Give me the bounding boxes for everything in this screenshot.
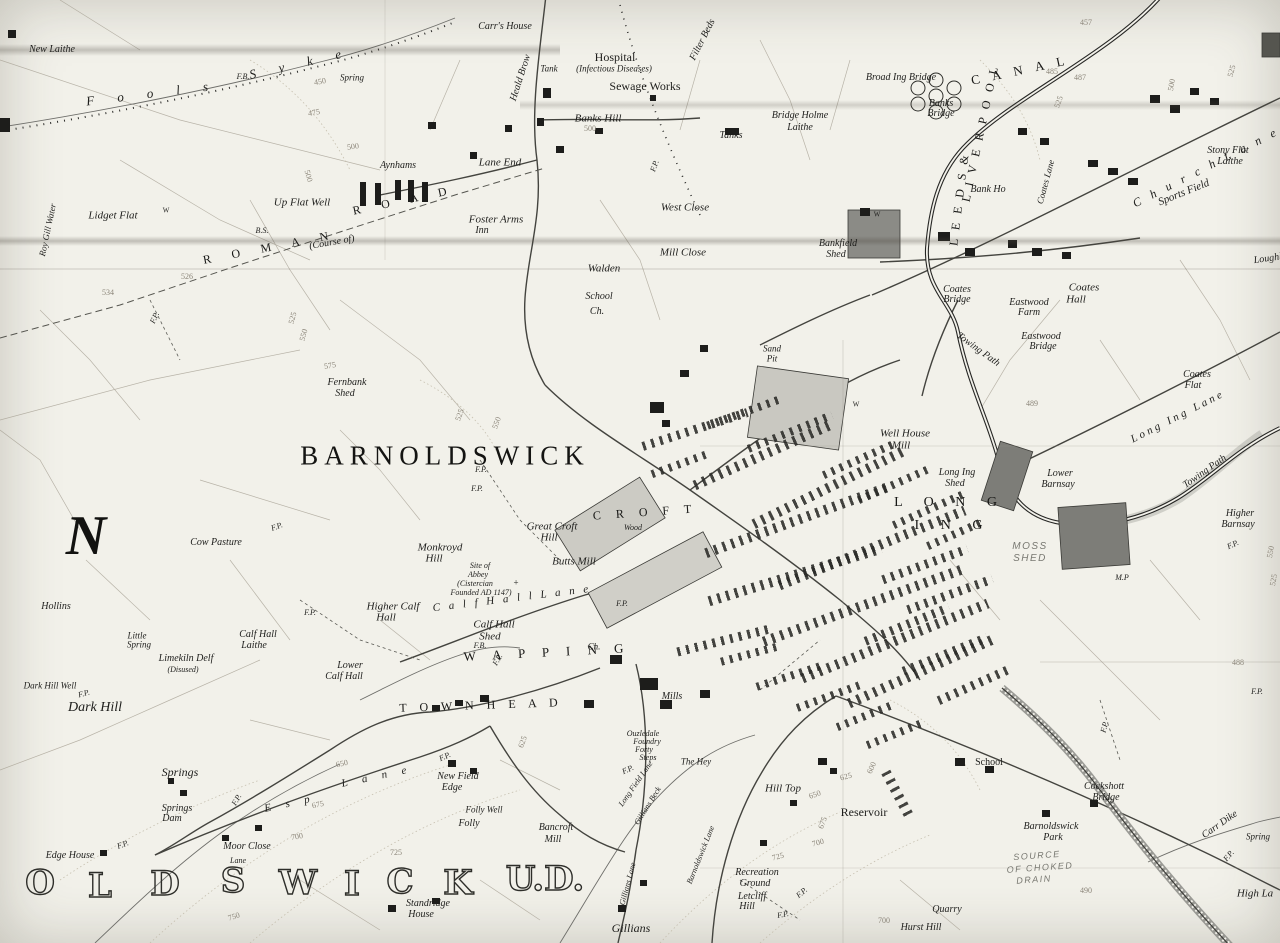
- map-label: Hill: [540, 533, 557, 544]
- map-label: Lidget Flat: [88, 211, 137, 222]
- map-label: Edge: [442, 783, 463, 793]
- map-label: Limekiln Delf: [159, 654, 214, 664]
- map-label: Hollins: [41, 602, 70, 612]
- map-label: Bridge: [943, 295, 970, 305]
- map-label: Recreation: [735, 868, 779, 878]
- map-label: Shed: [335, 389, 354, 399]
- map-label: Hill: [739, 902, 755, 912]
- map-label: Farm: [1018, 308, 1040, 318]
- map-label: (Infectious Diseases): [576, 65, 652, 74]
- map-label: Bridge: [927, 109, 954, 119]
- map-label: F.P.: [1251, 688, 1263, 696]
- map-label: Park: [1043, 833, 1062, 843]
- map-label: 526: [181, 273, 193, 281]
- map-label: Lower: [1047, 469, 1073, 479]
- map-label: 457: [1080, 19, 1092, 27]
- map-label: Up Flat Well: [274, 198, 330, 209]
- map-label: Carr's House: [478, 22, 532, 32]
- map-label: 725: [390, 849, 402, 857]
- map-label: Lane End: [479, 158, 521, 169]
- map-label: Coates: [1183, 370, 1211, 380]
- map-label: Tank: [540, 65, 557, 74]
- map-label: Bancroft: [539, 823, 574, 833]
- map-label: F.P.: [304, 609, 316, 617]
- map-label: Standridge: [406, 899, 450, 909]
- map-label: 500: [347, 142, 360, 152]
- map-label: Calf Hall: [239, 630, 277, 640]
- map-label: Walden: [588, 264, 621, 275]
- map-label: K: [443, 866, 473, 900]
- map-label: N: [66, 508, 106, 564]
- map-label: Mill: [545, 835, 562, 845]
- map-label: 488: [1232, 659, 1244, 667]
- map-label: Stony Flat: [1207, 146, 1248, 156]
- map-label: Folly: [458, 819, 479, 829]
- map-label: Laithe: [1217, 157, 1243, 167]
- map-label: Barnsay: [1041, 480, 1074, 490]
- map-label: I N G: [915, 519, 992, 533]
- map-label: Broad Ing Bridge: [866, 73, 936, 83]
- map-label: Bridge: [1029, 342, 1056, 352]
- map-label: F.P.: [471, 485, 483, 493]
- map-label: C: [386, 865, 413, 899]
- map-label: Hall: [376, 613, 396, 624]
- map-label: W: [853, 402, 860, 409]
- map-label: Ch.: [588, 643, 601, 652]
- map-label: Edge House: [46, 851, 95, 861]
- map-label: Tanks: [720, 131, 743, 141]
- map-label: Bankfield: [819, 239, 857, 249]
- map-label: Hill: [425, 554, 442, 565]
- map-label: Butts Mill: [552, 557, 596, 568]
- map-label: M.P: [1115, 574, 1129, 582]
- map-label: Springs: [162, 766, 199, 778]
- map-label: School: [585, 292, 612, 302]
- map-label: Dark Hill: [68, 701, 122, 715]
- map-label: Shed: [826, 250, 845, 260]
- map-label: (Disused): [167, 666, 198, 674]
- map-label: S: [221, 864, 246, 898]
- map-label: 489: [1026, 400, 1038, 408]
- map-label: Well House: [880, 429, 930, 440]
- map-label: West Close: [661, 203, 709, 214]
- map-label: Wood: [624, 524, 642, 532]
- map-label: 700: [878, 917, 890, 925]
- map-label: D: [150, 867, 179, 901]
- map-label: Foster Arms: [469, 215, 524, 226]
- map-label: B.S.: [256, 227, 269, 235]
- map-label: 500: [584, 125, 596, 133]
- map-label: Gillians: [612, 922, 651, 934]
- map-label: F.P.: [475, 466, 487, 474]
- map-label: I: [344, 867, 360, 901]
- map-label: Pit: [767, 355, 778, 364]
- map-label: Laithe: [241, 641, 267, 651]
- map-label: Banks Hill: [575, 114, 622, 125]
- mill-buildings: [555, 33, 1280, 628]
- boundary-dotted: [0, 22, 455, 132]
- map-label: Cow Pasture: [190, 538, 242, 548]
- map-label: Spring: [127, 641, 151, 650]
- map-label: F.P.: [616, 600, 628, 608]
- map-label: W: [163, 208, 170, 215]
- map-label: Flat: [1185, 381, 1202, 391]
- map-label: Ground: [740, 879, 771, 889]
- map-label: House: [408, 910, 434, 920]
- map-label: New Laithe: [29, 45, 75, 55]
- map-label: Bridge: [1092, 793, 1119, 803]
- map-label: Bank Ho: [970, 185, 1005, 195]
- map-label: 500: [303, 169, 314, 183]
- map-label: O: [25, 866, 55, 900]
- map-label: Abbey: [468, 571, 488, 579]
- map-label: Site of: [470, 562, 490, 570]
- map-label: The Hey: [681, 758, 711, 767]
- map-label: Hurst Hill: [901, 923, 942, 933]
- map-label: Shed: [945, 479, 964, 489]
- map-label: Laithe: [787, 123, 813, 133]
- map-label: Calf Hall: [325, 672, 363, 682]
- map-label: Lower: [337, 661, 363, 671]
- map-label: W: [874, 212, 881, 219]
- map-label: Coates: [1069, 283, 1100, 294]
- map-label: New Field: [437, 772, 478, 782]
- map-label: BARNOLDSWICK: [300, 443, 590, 470]
- map-label: Calf Hall: [473, 620, 514, 631]
- map-label: Hall: [1066, 295, 1086, 306]
- map-label: +: [513, 579, 518, 588]
- map-label: High La: [1237, 889, 1273, 900]
- map-label: (Cistercian: [457, 580, 493, 588]
- map-label: Ch.: [590, 307, 604, 317]
- map-label: Folly Well: [466, 806, 503, 815]
- map-label: Hill Top: [765, 784, 801, 795]
- map-label: L: [88, 869, 112, 903]
- map-label: School: [975, 758, 1003, 768]
- map-label: MOSS: [1012, 542, 1047, 552]
- map-label: Mill: [892, 441, 910, 452]
- map-label: Fernbank: [328, 378, 367, 388]
- map-label: Sand: [763, 345, 781, 354]
- map-label: Mill Close: [660, 248, 706, 259]
- map-label: Bridge Holme: [772, 111, 828, 121]
- map-label: Spring: [1246, 833, 1270, 842]
- map-label: Sewage Works: [609, 80, 680, 92]
- map-label: L O N G: [894, 496, 1006, 510]
- map-label: U.D.: [506, 862, 584, 896]
- map-label: Barnoldswick: [1024, 822, 1079, 832]
- map-label: 534: [102, 289, 114, 297]
- map-label: Inn: [475, 226, 488, 236]
- map-label: 490: [1080, 887, 1092, 895]
- map-label: 487: [1074, 74, 1086, 82]
- map-label: Quarry: [932, 905, 961, 915]
- map-label: Hospital: [595, 51, 636, 63]
- map-label: SHED: [1013, 554, 1047, 564]
- building-blocks: [0, 30, 1219, 912]
- map-label: Mills: [662, 692, 683, 702]
- map-label: Aynhams: [380, 161, 416, 171]
- map-label: W: [279, 866, 317, 900]
- map-label: Dam: [162, 814, 181, 824]
- map-label: Dark Hill Well: [24, 682, 77, 691]
- map-label: 485: [1046, 68, 1058, 76]
- map-label: F.B.: [237, 73, 250, 81]
- map-label: Higher: [1226, 509, 1254, 519]
- map-label: Long Ing: [939, 468, 975, 478]
- map-label: Moor Close: [223, 842, 271, 852]
- map-label: Spring: [340, 74, 364, 83]
- boundary-dotted: [620, 5, 700, 215]
- map-canvas: New LaitheF o o l sS y k eF.B.Spring4504…: [0, 0, 1280, 943]
- map-label: Barnsay: [1221, 520, 1254, 530]
- map-label: Cockshott: [1084, 782, 1124, 792]
- map-linework: [0, 0, 1280, 943]
- contour-lines: [60, 60, 1040, 943]
- map-label: Reservoir: [841, 806, 888, 818]
